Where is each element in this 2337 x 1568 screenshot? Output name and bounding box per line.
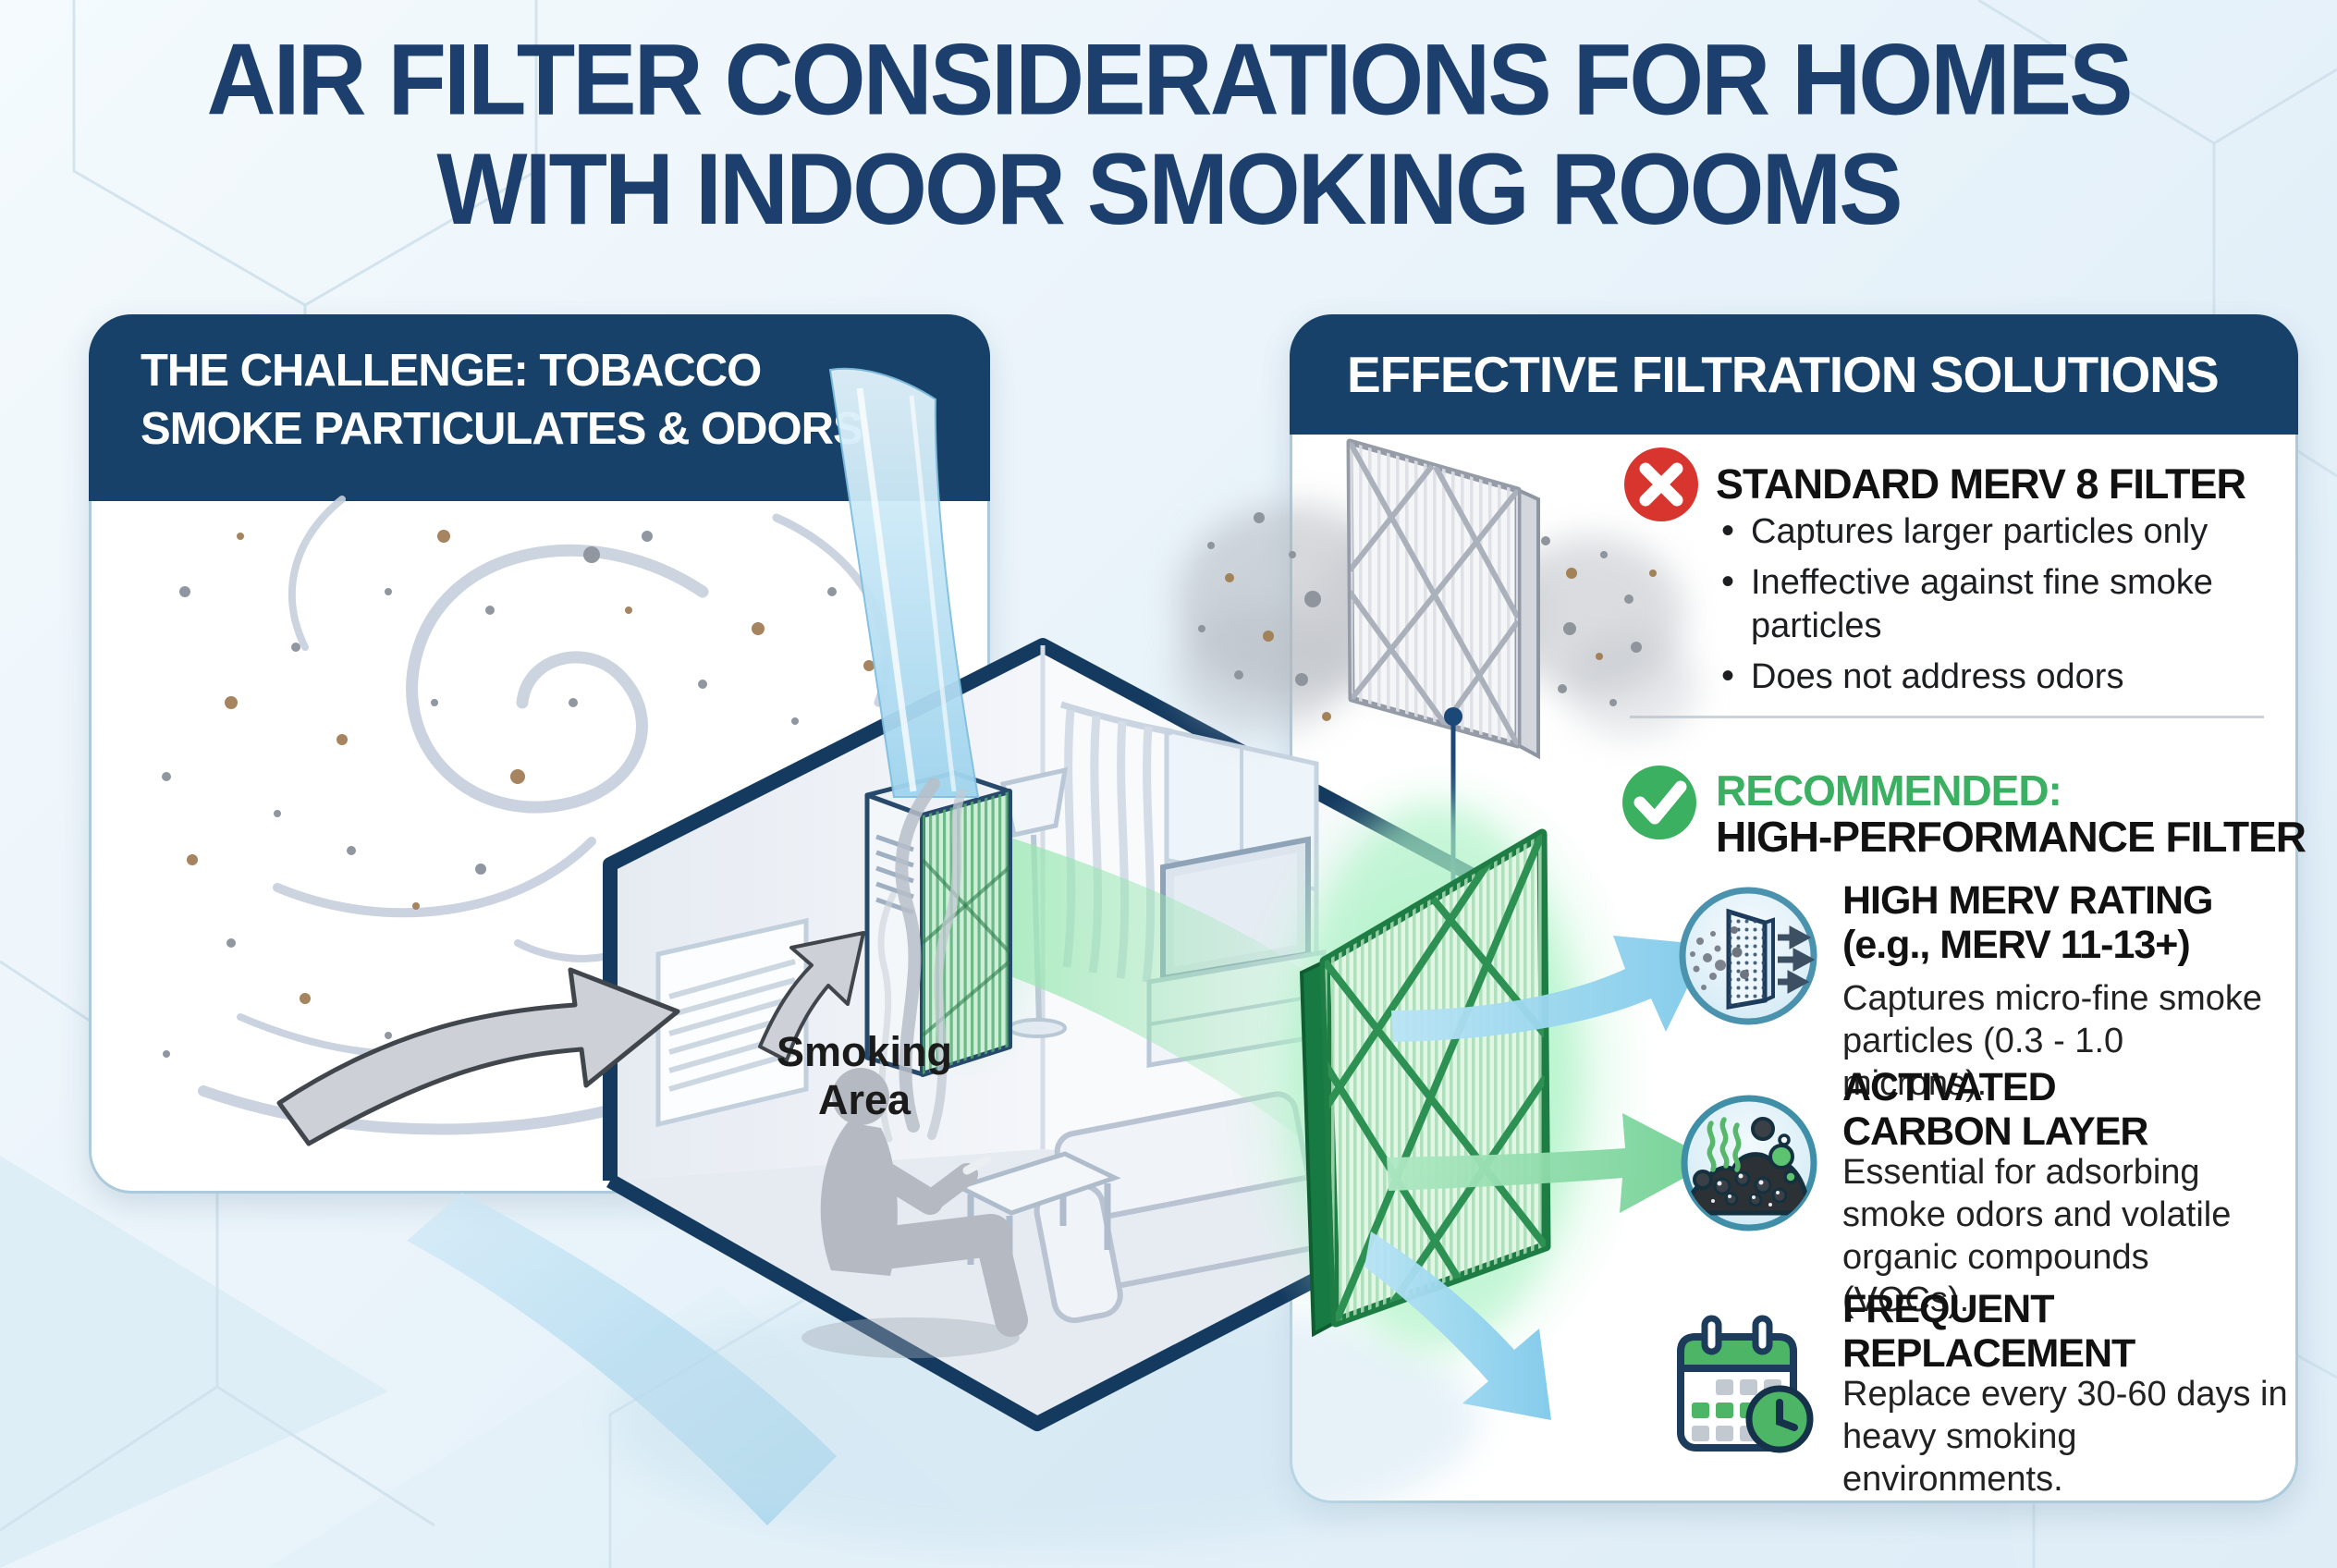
standard-filter-bullet: Does not address odors (1721, 655, 2239, 698)
standard-filter-title: STANDARD MERV 8 FILTER (1716, 460, 2245, 508)
standard-filter-bullet: Ineffective against fine smoke particles (1721, 561, 2239, 647)
standard-filter-bullet: Captures larger particles only (1721, 510, 2239, 553)
feature-carbon-title-line2: CARBON LAYER (1842, 1109, 2147, 1154)
challenge-panel-header: THE CHALLENGE: TOBACCO SMOKE PARTICULATE… (89, 314, 990, 501)
section-divider (1630, 716, 2264, 718)
feature-merv-title: HIGH MERV RATING (e.g., MERV 11-13+) (1842, 878, 2212, 967)
curtain (1061, 704, 1172, 982)
challenge-header-line2: SMOKE PARTICULATES & ODORS (141, 400, 990, 459)
feature-carbon-title: ACTIVATED CARBON LAYER (1842, 1065, 2147, 1154)
calendar-clock-icon (1668, 1311, 1819, 1463)
smoking-area-label-line2: Area (758, 1076, 971, 1124)
standard-filter-bullets: Captures larger particles only Ineffecti… (1721, 510, 2239, 706)
feature-replacement-title-line2: REPLACEMENT (1842, 1331, 2135, 1376)
activated-carbon-icon (1678, 1092, 1820, 1234)
feature-replacement-body: Replace every 30-60 days in heavy smokin… (1842, 1374, 2288, 1501)
smoking-area-label: Smoking Area (758, 1028, 971, 1124)
recommended-title: HIGH-PERFORMANCE FILTER (1716, 812, 2306, 862)
feature-merv-title-line2: (e.g., MERV 11-13+) (1842, 923, 2212, 967)
feature-carbon-title-line1: ACTIVATED (1842, 1065, 2147, 1109)
infographic-canvas: AIR FILTER CONSIDERATIONS FOR HOMES WITH… (0, 0, 2337, 1568)
feature-merv-title-line1: HIGH MERV RATING (1842, 878, 2212, 923)
solutions-header-text: EFFECTIVE FILTRATION SOLUTIONS (1347, 314, 2298, 435)
floor-lamp (1003, 770, 1065, 1036)
page-title: AIR FILTER CONSIDERATIONS FOR HOMES WITH… (0, 26, 2337, 246)
challenge-header-line1: THE CHALLENGE: TOBACCO (141, 342, 990, 400)
feature-replacement-title-line1: FREQUENT (1842, 1287, 2135, 1331)
page-title-line1: AIR FILTER CONSIDERATIONS FOR HOMES (0, 26, 2337, 136)
merv-filter-icon (1676, 884, 1820, 1028)
solutions-panel-header: EFFECTIVE FILTRATION SOLUTIONS (1290, 314, 2298, 435)
feature-replacement-title: FREQUENT REPLACEMENT (1842, 1287, 2135, 1376)
recommended-label: RECOMMENDED: (1716, 766, 2062, 815)
smoking-area-label-line1: Smoking (758, 1028, 971, 1076)
page-title-line2: WITH INDOOR SMOKING ROOMS (0, 136, 2337, 246)
light-swoosh (407, 1193, 837, 1525)
